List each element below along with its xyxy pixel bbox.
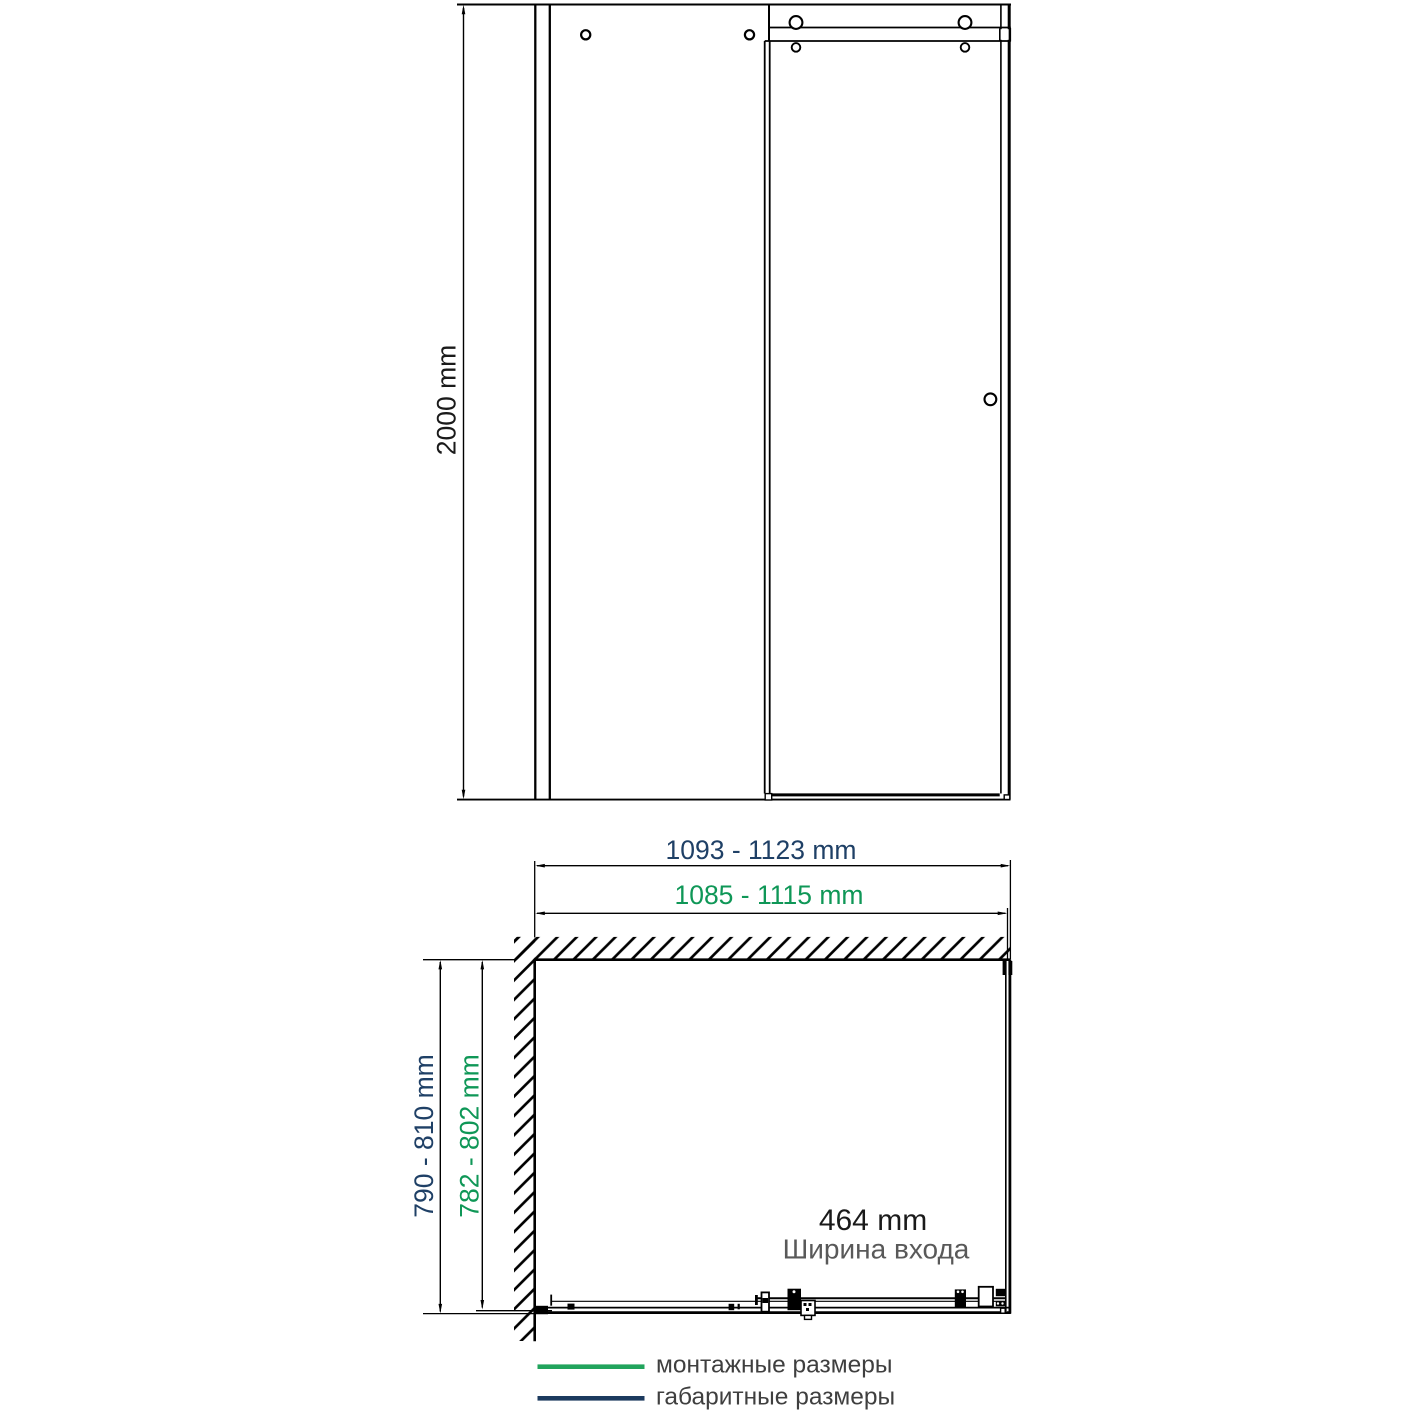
svg-text:790 - 810 mm: 790 - 810 mm — [409, 1054, 439, 1218]
svg-text:габаритные размеры: габаритные размеры — [656, 1383, 895, 1410]
svg-text:Ширина входа: Ширина входа — [783, 1234, 970, 1265]
svg-text:2000 mm: 2000 mm — [432, 345, 462, 455]
svg-text:1093 - 1123 mm: 1093 - 1123 mm — [666, 835, 857, 865]
svg-text:1085 - 1115 mm: 1085 - 1115 mm — [674, 880, 863, 910]
svg-text:монтажные размеры: монтажные размеры — [656, 1352, 892, 1379]
svg-text:464 mm: 464 mm — [819, 1204, 927, 1237]
svg-text:782 - 802 mm: 782 - 802 mm — [455, 1054, 485, 1218]
